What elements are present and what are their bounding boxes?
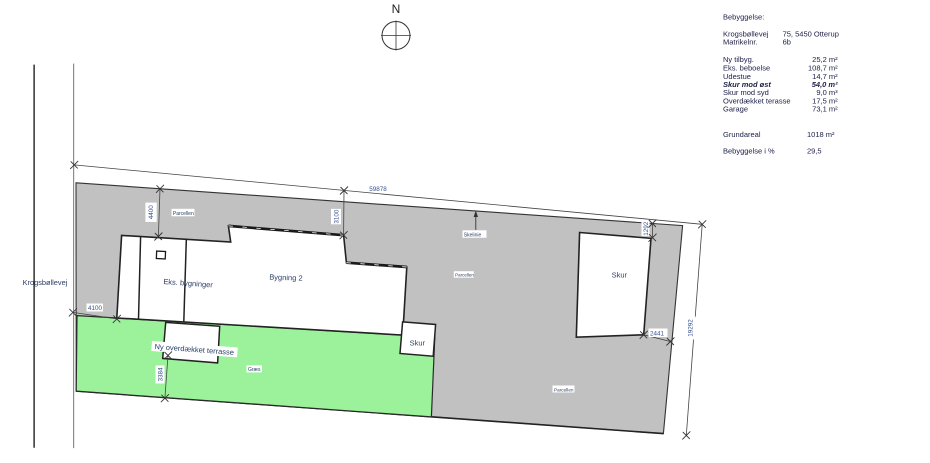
svg-text:59878: 59878 xyxy=(369,186,387,193)
svg-text:Bygning 2: Bygning 2 xyxy=(269,273,303,283)
svg-text:Garage: Garage xyxy=(723,105,748,114)
svg-text:4100: 4100 xyxy=(88,305,103,312)
svg-text:29,5: 29,5 xyxy=(807,147,822,156)
svg-text:Grundareal: Grundareal xyxy=(723,130,761,139)
svg-text:3100: 3100 xyxy=(333,209,340,224)
svg-text:2441: 2441 xyxy=(650,330,665,337)
svg-text:Græs: Græs xyxy=(248,367,261,373)
svg-text:6b: 6b xyxy=(783,37,791,46)
svg-text:4400: 4400 xyxy=(148,205,155,220)
svg-text:Parcellen: Parcellen xyxy=(173,211,194,217)
svg-text:Skur: Skur xyxy=(410,339,426,348)
svg-text:Parcellen: Parcellen xyxy=(455,272,474,277)
svg-text:3384: 3384 xyxy=(158,367,165,382)
svg-text:Bebyggelse:: Bebyggelse: xyxy=(723,12,764,21)
svg-text:1018 m²: 1018 m² xyxy=(807,130,835,139)
svg-text:Skelinie: Skelinie xyxy=(464,232,482,238)
svg-text:75, 5450 Otterup: 75, 5450 Otterup xyxy=(783,30,839,39)
svg-text:N: N xyxy=(392,2,401,16)
svg-text:Krogsbøllevej: Krogsbøllevej xyxy=(23,278,68,287)
svg-text:Bebyggelse i %: Bebyggelse i % xyxy=(723,147,775,156)
svg-text:Parcellen: Parcellen xyxy=(554,387,574,392)
svg-text:Skur: Skur xyxy=(612,271,628,280)
svg-text:1292: 1292 xyxy=(643,221,650,236)
svg-text:19292: 19292 xyxy=(688,319,695,337)
svg-text:Matrikelnr.: Matrikelnr. xyxy=(723,37,758,46)
svg-text:73,1 m²: 73,1 m² xyxy=(812,105,838,114)
